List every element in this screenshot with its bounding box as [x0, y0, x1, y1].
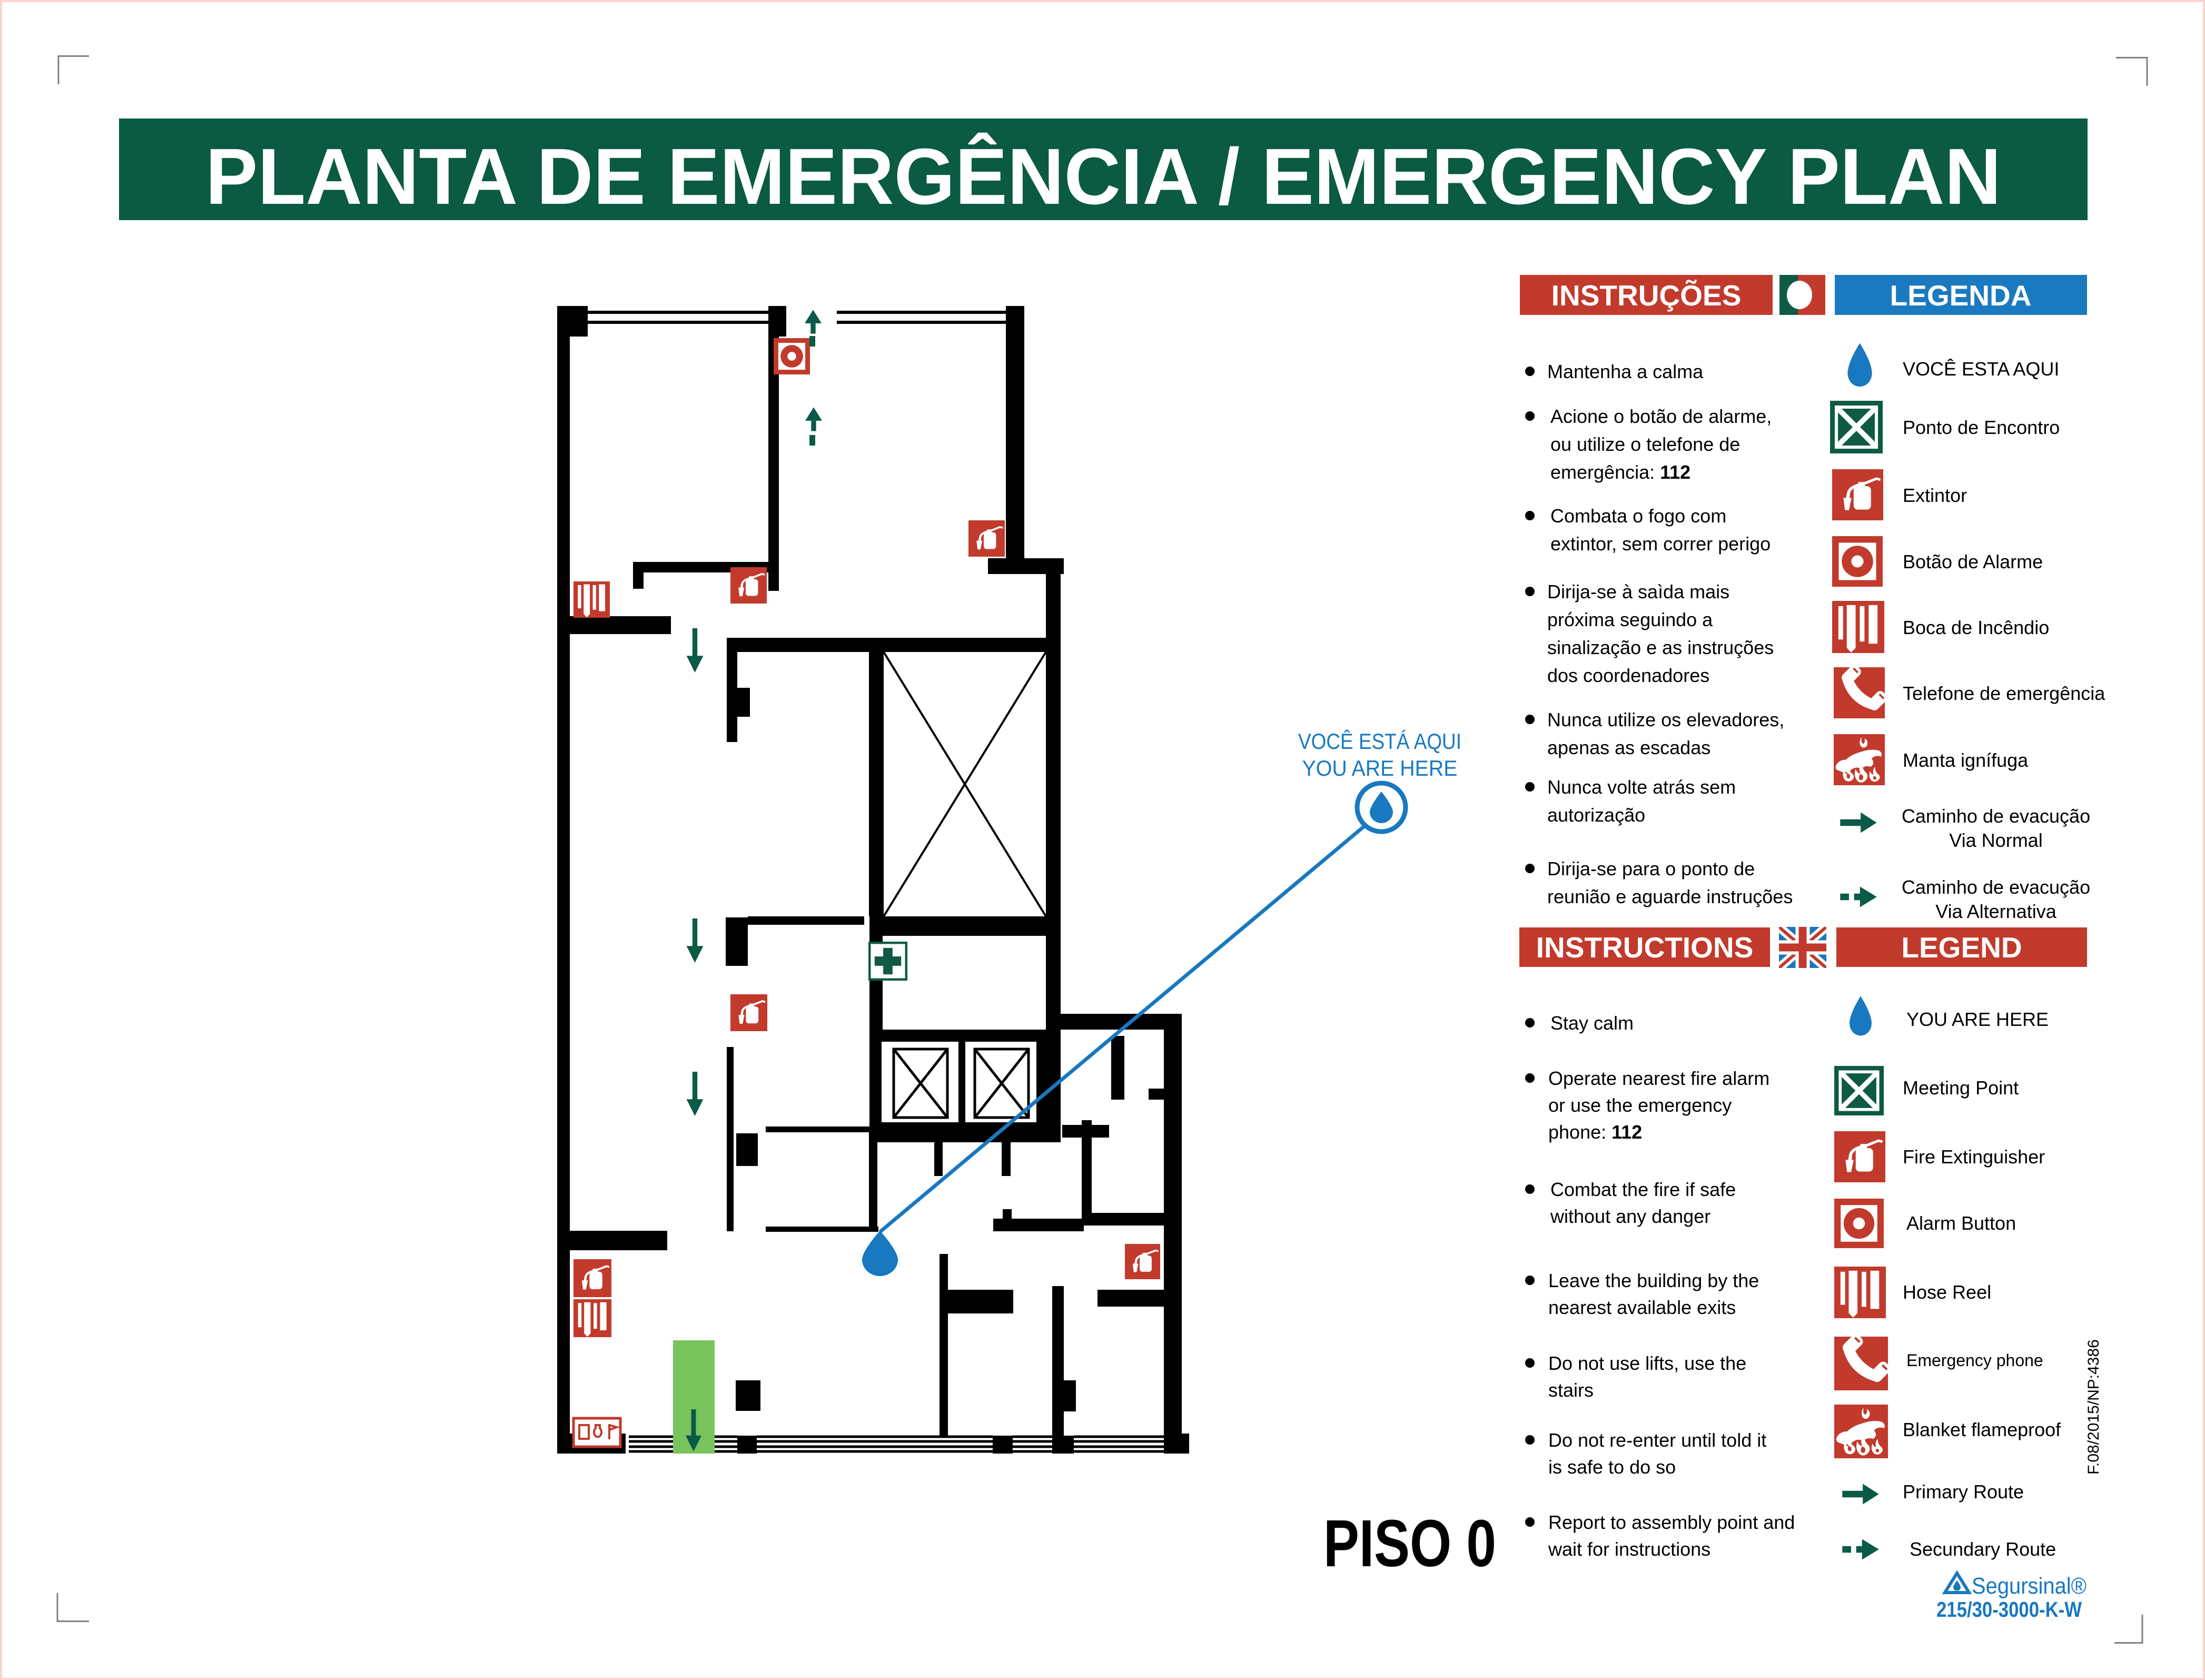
svg-text:Segursinal®: Segursinal®	[1972, 1573, 2087, 1599]
svg-text:or use the emergency: or use the emergency	[1548, 1094, 1732, 1116]
svg-text:ou utilize o telefone de: ou utilize o telefone de	[1550, 433, 1740, 455]
svg-text:stairs: stairs	[1548, 1379, 1594, 1401]
svg-text:dos coordenadores: dos coordenadores	[1547, 665, 1709, 686]
svg-text:Alarm Button: Alarm Button	[1906, 1212, 2016, 1234]
svg-text:VOCÊ ESTÁ AQUI: VOCÊ ESTÁ AQUI	[1298, 729, 1461, 754]
svg-text:Do not use lifts, use the: Do not use lifts, use the	[1548, 1352, 1746, 1374]
svg-text:LEGENDA: LEGENDA	[1890, 279, 2032, 312]
svg-text:without any danger: without any danger	[1550, 1205, 1710, 1227]
svg-text:F.08/2015/NP:4386: F.08/2015/NP:4386	[2085, 1339, 2102, 1475]
svg-text:INSTRUCTIONS: INSTRUCTIONS	[1536, 931, 1754, 964]
svg-text:extintor, sem correr perigo: extintor, sem correr perigo	[1550, 533, 1771, 555]
svg-text:Fire Extinguisher: Fire Extinguisher	[1903, 1146, 2045, 1168]
svg-text:YOU ARE HERE: YOU ARE HERE	[1302, 756, 1458, 780]
svg-text:Emergency phone: Emergency phone	[1906, 1351, 2043, 1370]
svg-text:Meeting Point: Meeting Point	[1903, 1077, 2019, 1099]
svg-text:Nunca utilize os elevadores,: Nunca utilize os elevadores,	[1547, 709, 1784, 730]
svg-text:Mantenha a calma: Mantenha a calma	[1547, 361, 1704, 382]
svg-text:Acione o botão de alarme,: Acione o botão de alarme,	[1550, 406, 1772, 427]
svg-text:Primary Route: Primary Route	[1903, 1481, 2024, 1503]
svg-text:Telefone de emergência: Telefone de emergência	[1903, 683, 2105, 704]
svg-text:wait for instructions: wait for instructions	[1548, 1538, 1710, 1560]
svg-text:YOU ARE HERE: YOU ARE HERE	[1906, 1009, 2049, 1030]
svg-text:PLANTA DE EMERGÊNCIA / EMERGEN: PLANTA DE EMERGÊNCIA / EMERGENCY PLAN	[205, 132, 2001, 221]
svg-text:Dirija-se à saìda mais: Dirija-se à saìda mais	[1547, 581, 1729, 602]
svg-text:Combat the fire if safe: Combat the fire if safe	[1550, 1179, 1736, 1200]
svg-text:Via Alternativa: Via Alternativa	[1935, 901, 2056, 922]
svg-text:reunião e aguarde instruções: reunião e aguarde instruções	[1547, 886, 1793, 907]
svg-text:is safe to do so: is safe to do so	[1548, 1456, 1676, 1478]
svg-text:Ponto de Encontro: Ponto de Encontro	[1903, 417, 2060, 438]
svg-text:sinalização e as instruções: sinalização e as instruções	[1547, 637, 1774, 658]
svg-text:apenas as escadas: apenas as escadas	[1547, 737, 1710, 758]
svg-text:VOCÊ ESTA AQUI: VOCÊ ESTA AQUI	[1903, 358, 2059, 380]
svg-text:Leave the building by the: Leave the building by the	[1548, 1270, 1759, 1291]
svg-text:Nunca volte atrás sem: Nunca volte atrás sem	[1547, 776, 1736, 798]
svg-text:Extintor: Extintor	[1903, 485, 1967, 506]
svg-text:INSTRUÇÕES: INSTRUÇÕES	[1551, 279, 1742, 312]
svg-text:Secundary Route: Secundary Route	[1910, 1538, 2056, 1560]
svg-text:autorização: autorização	[1547, 804, 1645, 826]
svg-text:Combata o fogo com: Combata o fogo com	[1550, 505, 1726, 527]
svg-text:Report to assembly point and: Report to assembly point and	[1548, 1511, 1795, 1533]
svg-text:Stay calm: Stay calm	[1550, 1012, 1634, 1034]
svg-text:emergência: 112: emergência: 112	[1550, 461, 1690, 483]
svg-text:Do not re-enter until told it: Do not re-enter until told it	[1548, 1429, 1766, 1451]
svg-text:nearest available exits: nearest available exits	[1548, 1297, 1736, 1318]
svg-text:LEGEND: LEGEND	[1901, 931, 2022, 964]
svg-text:Caminho de evacução: Caminho de evacução	[1902, 805, 2090, 827]
svg-text:phone: 112: phone: 112	[1548, 1121, 1642, 1143]
svg-text:Via Normal: Via Normal	[1949, 829, 2042, 851]
svg-text:Caminho de evacução: Caminho de evacução	[1902, 876, 2090, 898]
svg-text:Hose Reel: Hose Reel	[1903, 1281, 1991, 1303]
svg-text:Boca de Incêndio: Boca de Incêndio	[1903, 617, 2049, 638]
svg-text:Dirija-se para o ponto de: Dirija-se para o ponto de	[1547, 858, 1755, 879]
svg-text:PISO 0: PISO 0	[1323, 1506, 1496, 1580]
svg-text:Manta ignífuga: Manta ignífuga	[1903, 749, 2029, 771]
svg-text:Operate nearest fire alarm: Operate nearest fire alarm	[1548, 1068, 1769, 1089]
svg-text:Botão de Alarme: Botão de Alarme	[1903, 551, 2043, 572]
svg-text:Blanket flameproof: Blanket flameproof	[1903, 1419, 2061, 1440]
svg-text:215/30-3000-K-W: 215/30-3000-K-W	[1936, 1597, 2082, 1622]
svg-text:próxima seguindo a: próxima seguindo a	[1547, 609, 1713, 630]
